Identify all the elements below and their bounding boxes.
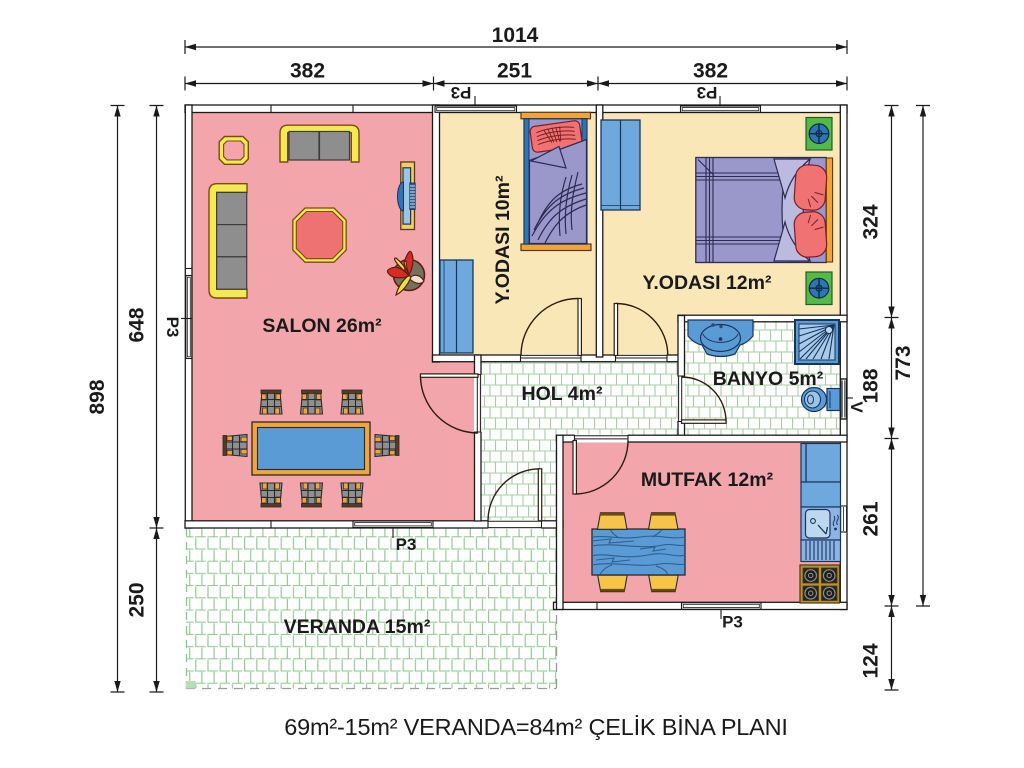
svg-text:188: 188 <box>860 368 883 403</box>
svg-text:P3: P3 <box>722 613 743 632</box>
svg-text:SALON 26m²: SALON 26m² <box>262 315 382 337</box>
svg-text:773: 773 <box>892 345 915 380</box>
svg-text:HOL 4m²: HOL 4m² <box>522 383 603 405</box>
svg-text:382: 382 <box>290 60 325 83</box>
svg-text:Y.ODASI 10m²: Y.ODASI 10m² <box>492 175 514 304</box>
svg-text:382: 382 <box>693 60 728 83</box>
svg-text:1014: 1014 <box>492 24 539 47</box>
svg-text:648: 648 <box>126 307 149 342</box>
svg-text:Y.ODASI 12m²: Y.ODASI 12m² <box>643 272 772 294</box>
svg-text:324: 324 <box>860 204 883 239</box>
svg-text:261: 261 <box>860 501 883 536</box>
svg-text:P3: P3 <box>163 317 182 338</box>
svg-text:250: 250 <box>126 582 149 617</box>
svg-text:69m²-15m² VERANDA=84m² ÇELİK B: 69m²-15m² VERANDA=84m² ÇELİK BİNA PLANI <box>284 714 788 740</box>
svg-text:124: 124 <box>860 643 883 678</box>
svg-text:P3: P3 <box>451 83 472 102</box>
svg-text:P3: P3 <box>697 83 718 102</box>
svg-text:898: 898 <box>86 379 109 414</box>
svg-text:BANYO 5m²: BANYO 5m² <box>713 368 824 390</box>
svg-text:P3: P3 <box>396 535 417 554</box>
svg-text:V: V <box>847 401 866 413</box>
svg-text:MUTFAK 12m²: MUTFAK 12m² <box>641 469 774 491</box>
svg-text:VERANDA 15m²: VERANDA 15m² <box>284 616 431 638</box>
svg-text:251: 251 <box>497 60 532 83</box>
